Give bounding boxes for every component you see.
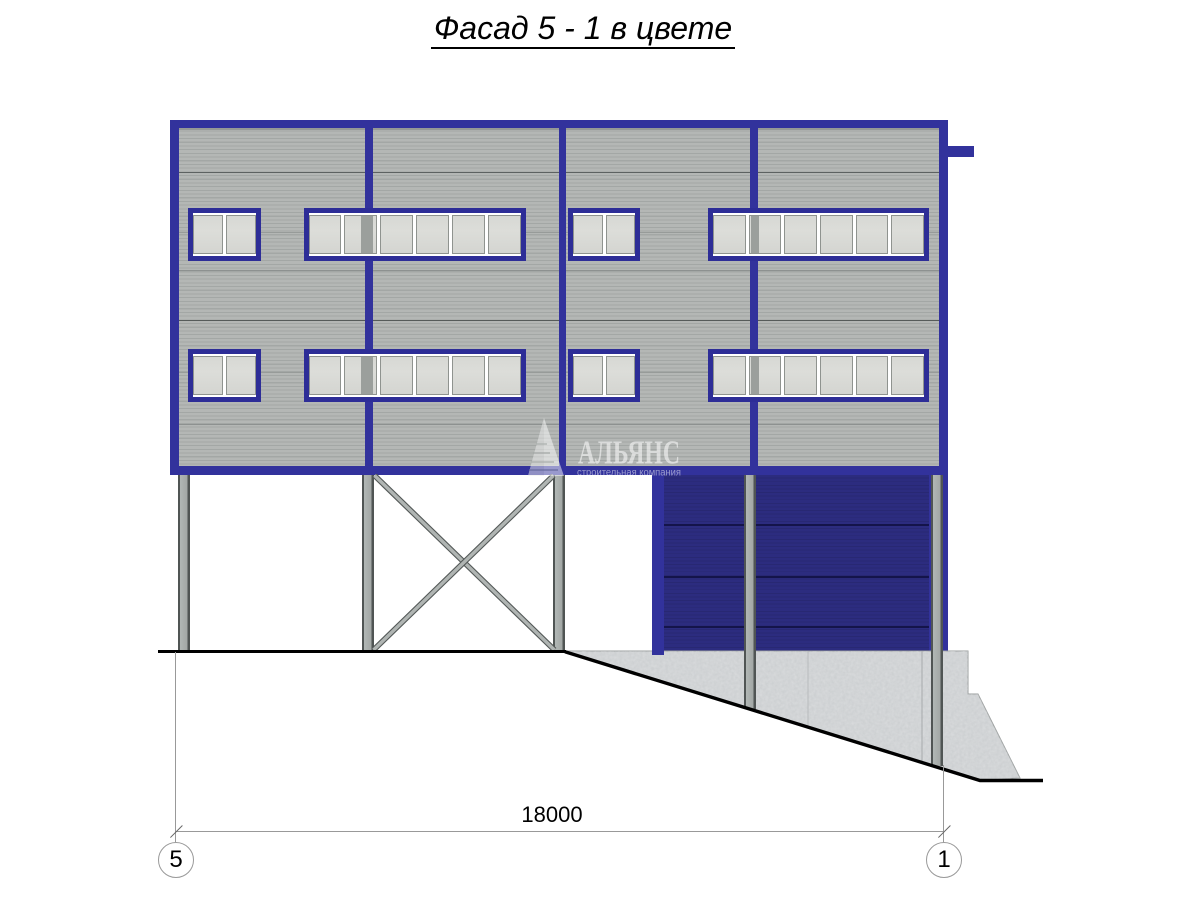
svg-text:АЛЬЯНС: АЛЬЯНС	[578, 435, 680, 472]
svg-text:строительная компания: строительная компания	[577, 468, 681, 479]
